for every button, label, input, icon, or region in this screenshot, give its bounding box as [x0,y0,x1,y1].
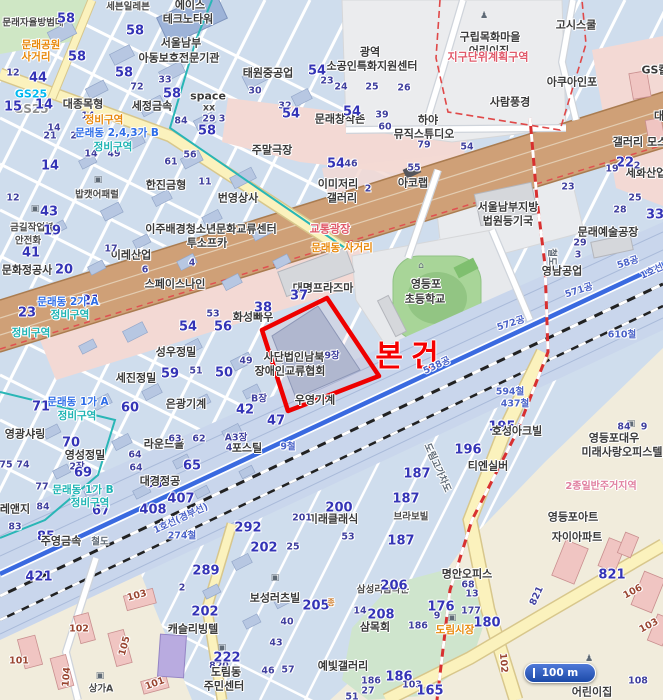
map-canvas [0,0,663,700]
scale-tick [533,668,535,678]
map-viewport[interactable]: ♟⌂▣▣▣▣▣♟▣▣⌂ 문래자율방범대세븐일레븐에이스테크노타워서울남부아동보호… [0,0,663,700]
scale-label: 100 m [542,667,579,679]
scale-bar: 100 m [524,663,596,683]
